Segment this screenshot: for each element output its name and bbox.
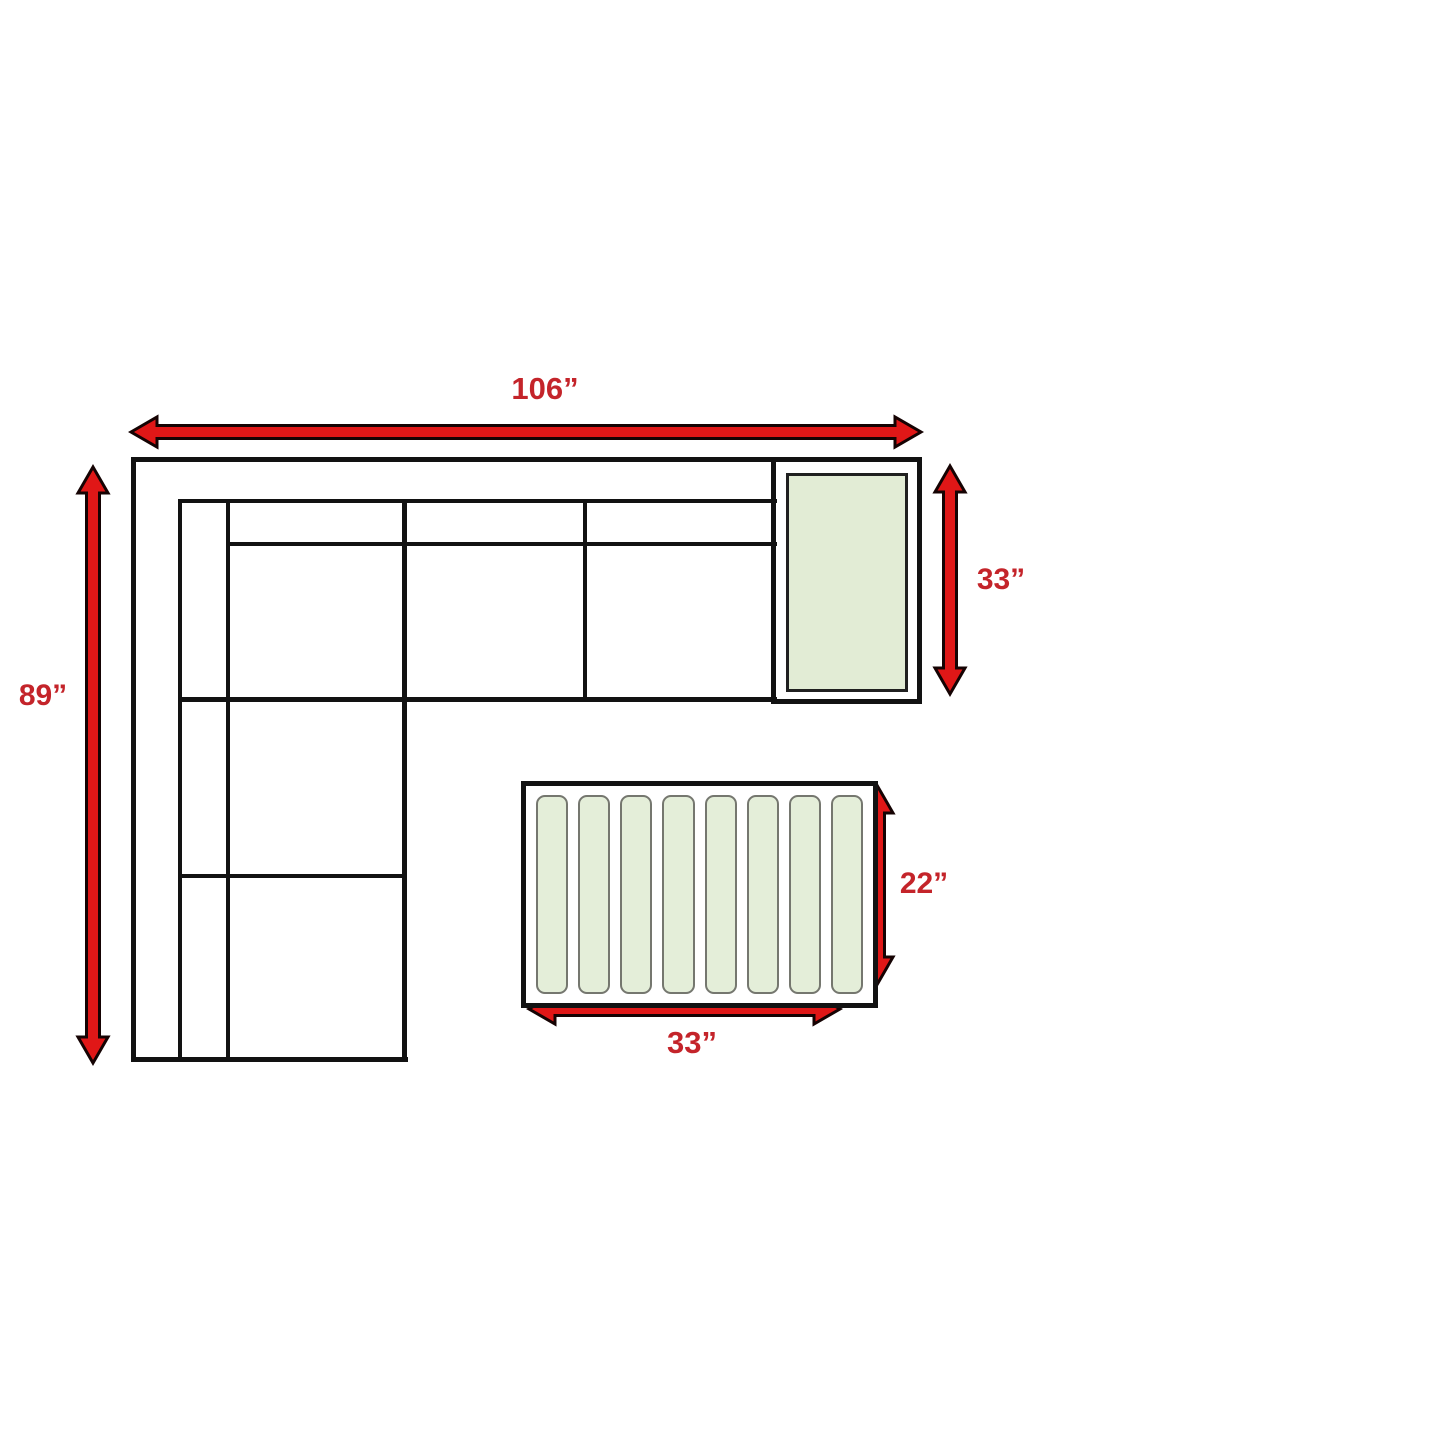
- sofa-chaise-seat-divider: [178, 874, 407, 878]
- sofa-chaise-right-edge: [402, 499, 407, 1062]
- coffee-table-slat: [578, 795, 610, 994]
- coffee-table-slat: [831, 795, 863, 994]
- sofa-back-cushion-line: [226, 542, 777, 546]
- sofa-outer-left-edge: [131, 457, 136, 1062]
- overall-depth-label: 89”: [19, 679, 67, 713]
- double-arrow-shape: [131, 417, 921, 447]
- double-arrow-shape: [935, 466, 965, 694]
- coffee-table-slat: [789, 795, 821, 994]
- coffee-table-slat: [536, 795, 568, 994]
- coffee-table-depth-label: 22”: [900, 867, 948, 901]
- sofa-side-cushion-line: [226, 499, 230, 1062]
- end-table-depth-arrow: [927, 463, 973, 697]
- double-arrow-shape: [78, 467, 108, 1063]
- end-table-bottom-edge: [771, 699, 922, 704]
- dimension-diagram-canvas: 106” 89” 33” 22” 33”: [0, 0, 1445, 1445]
- sofa-outer-bottom-edge: [131, 1057, 408, 1062]
- coffee-table-width-label: 33”: [667, 1025, 717, 1061]
- coffee-table-slat: [620, 795, 652, 994]
- overall-depth-arrow: [70, 464, 116, 1066]
- coffee-table-slat: [662, 795, 694, 994]
- sofa-outer-top-edge: [131, 457, 922, 462]
- sofa-seat-divider-right: [583, 499, 587, 702]
- end-table-left-edge: [771, 457, 776, 704]
- coffee-table: [521, 781, 878, 1008]
- sofa-inner-back-line: [178, 499, 777, 503]
- end-table-depth-label: 33”: [977, 563, 1025, 597]
- coffee-table-slat: [705, 795, 737, 994]
- overall-width-label: 106”: [511, 371, 578, 407]
- end-table-green-top: [786, 473, 908, 692]
- sofa-seat-bottom-edge: [178, 697, 777, 702]
- coffee-table-slat: [747, 795, 779, 994]
- sofa-inner-arm-line: [178, 499, 182, 1062]
- overall-width-arrow: [128, 409, 924, 455]
- end-table-right-edge: [917, 457, 922, 704]
